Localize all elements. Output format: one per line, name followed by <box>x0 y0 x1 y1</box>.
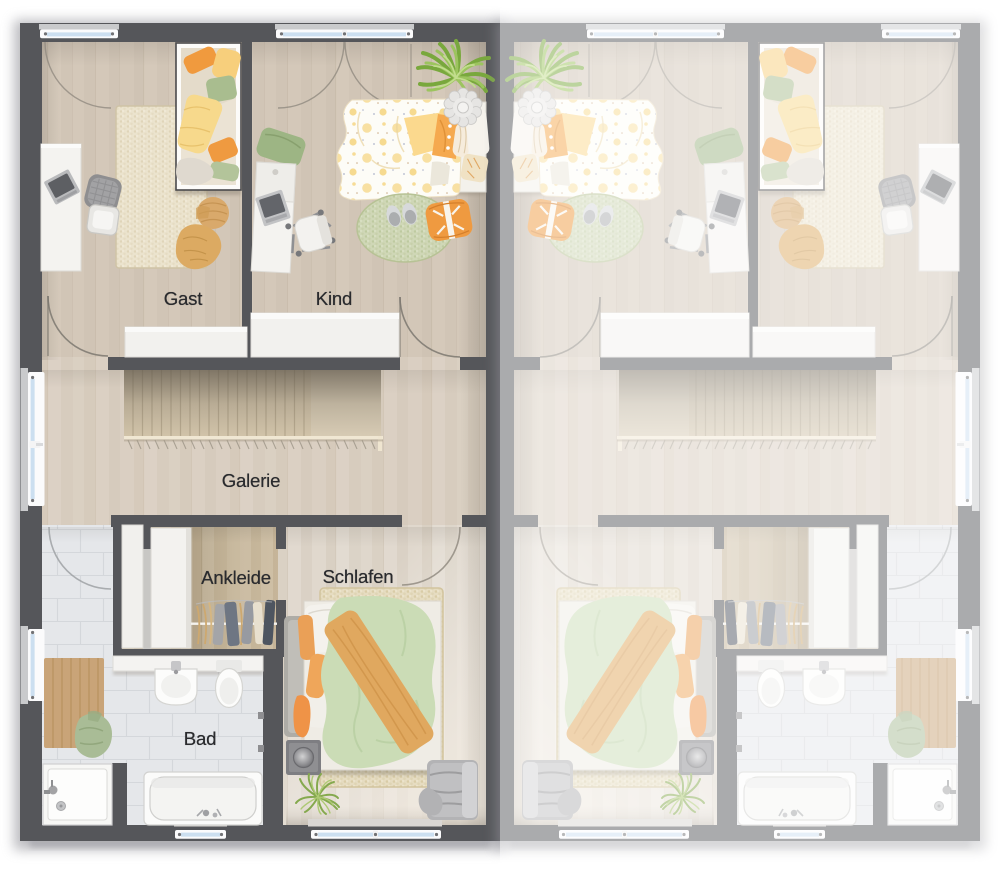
svg-text:Schlafen: Schlafen <box>323 566 394 587</box>
svg-text:Gast: Gast <box>164 288 204 309</box>
svg-text:Kind: Kind <box>316 288 352 309</box>
svg-text:Bad: Bad <box>184 728 216 749</box>
svg-text:Ankleide: Ankleide <box>201 567 271 588</box>
svg-text:Galerie: Galerie <box>222 470 281 491</box>
